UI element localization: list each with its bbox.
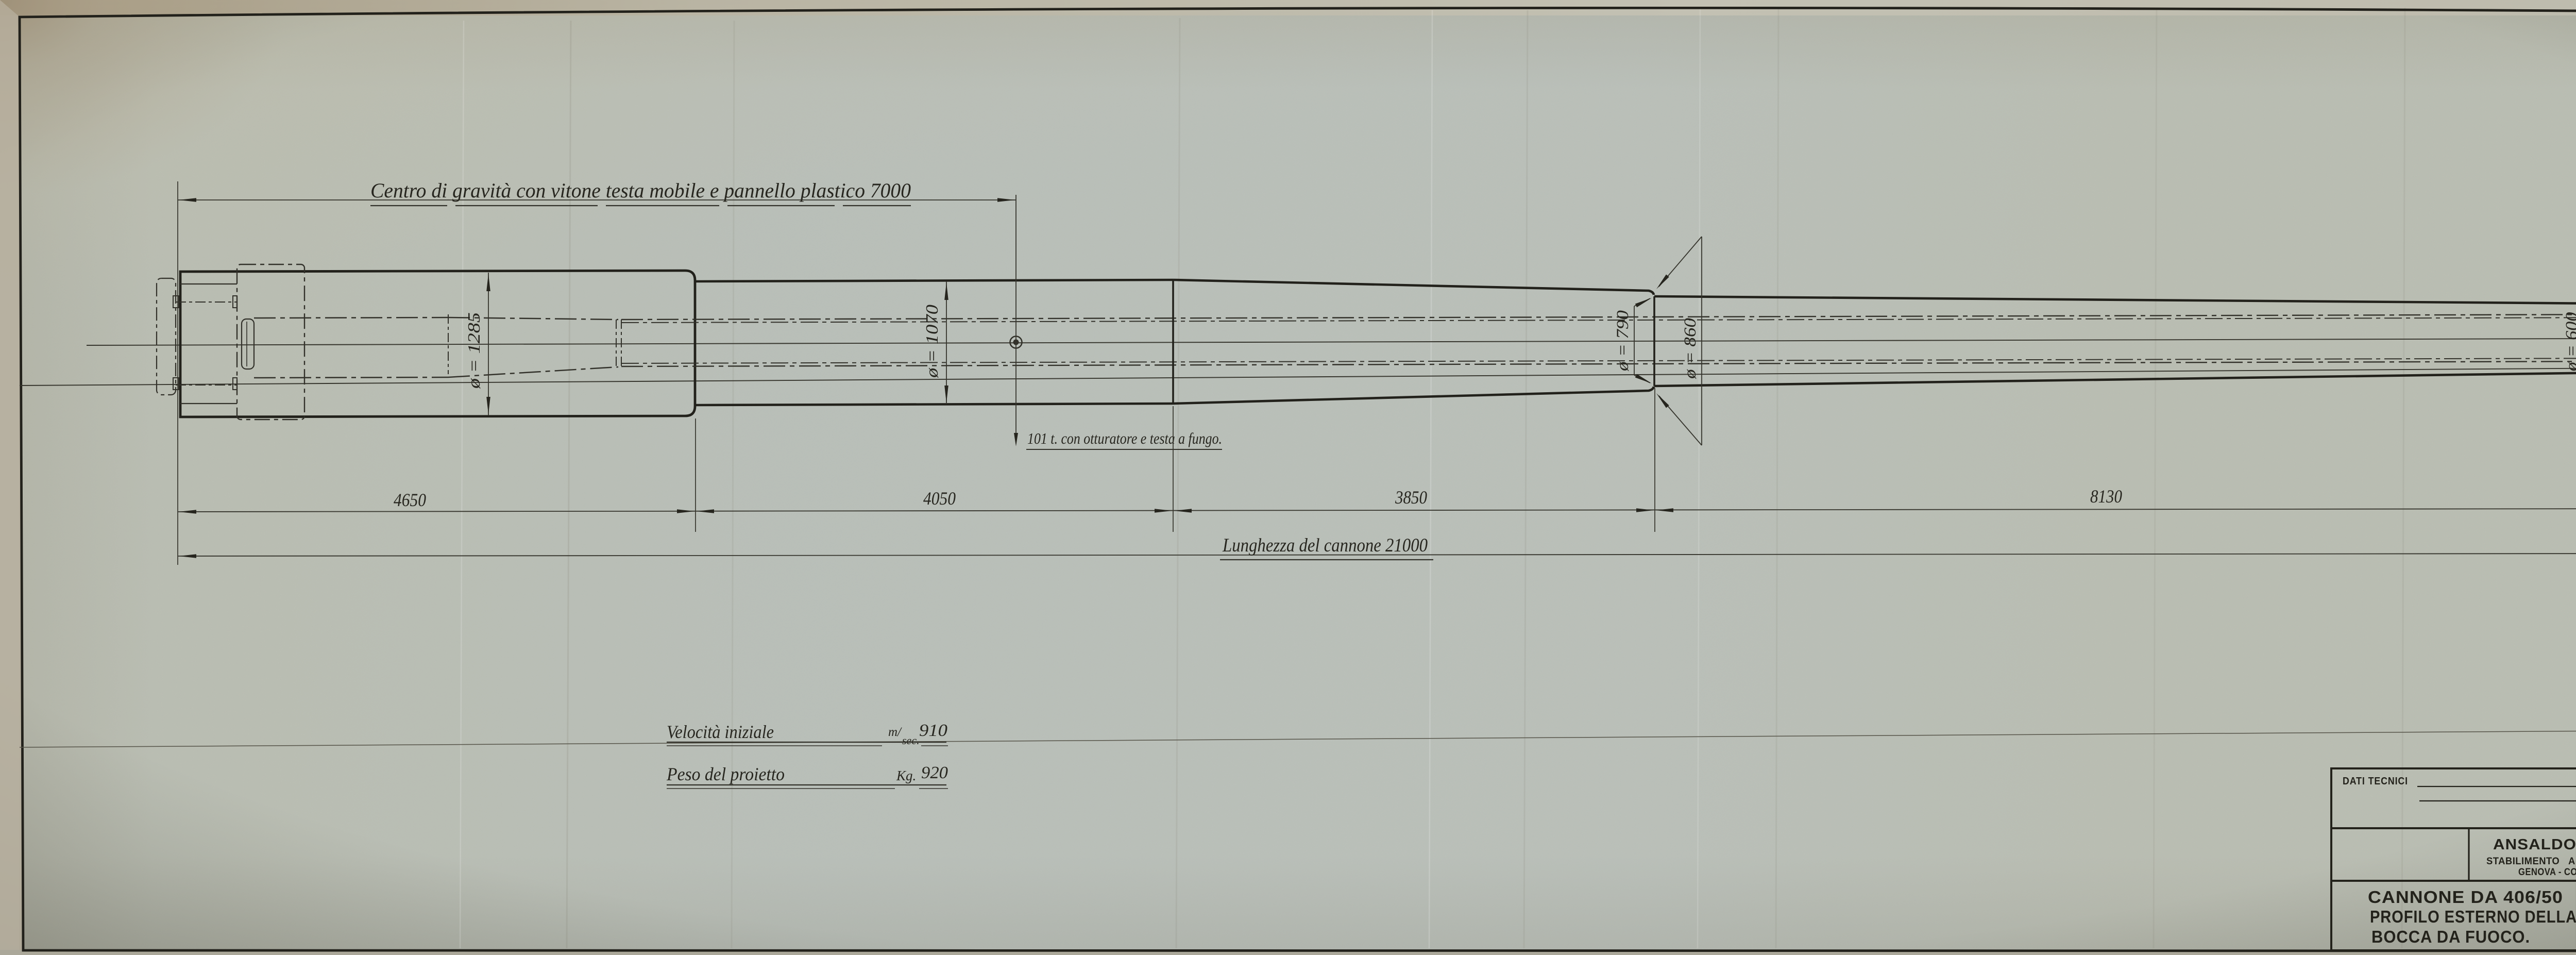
svg-text:4650: 4650 <box>394 490 426 510</box>
svg-text:STABILIMENTO ARTIGLIERIE: STABILIMENTO ARTIGLIERIE <box>2486 856 2576 867</box>
svg-text:Centro di gravità con vitone: Centro di gravità con vitone testa mobil… <box>370 179 911 202</box>
svg-text:DATI TECNICI: DATI TECNICI <box>2343 776 2408 787</box>
svg-text:Lunghezza del cannone 21000: Lunghezza del cannone 21000 <box>1222 535 1428 556</box>
svg-text:Peso del proietto: Peso del proietto <box>666 764 785 784</box>
svg-text:ø = 1285: ø = 1285 <box>465 312 484 389</box>
svg-text:ø = 1070: ø = 1070 <box>923 305 942 378</box>
svg-text:GENOVA - CORNIGLIANO: GENOVA - CORNIGLIANO <box>2518 867 2576 878</box>
svg-text:4050: 4050 <box>923 488 956 509</box>
svg-text:Kg.: Kg. <box>896 768 916 783</box>
svg-text:PROFILO ESTERNO DELLA: PROFILO ESTERNO DELLA <box>2370 907 2576 926</box>
svg-text:m/: m/ <box>888 725 902 739</box>
svg-text:920: 920 <box>921 763 948 782</box>
svg-text:ø = 790: ø = 790 <box>1614 310 1632 372</box>
svg-text:910: 910 <box>919 721 947 740</box>
svg-text:BOCCA DA FUOCO.: BOCCA DA FUOCO. <box>2371 927 2530 946</box>
svg-text:3850: 3850 <box>1395 487 1427 508</box>
svg-text:CANNONE DA 406/50: CANNONE DA 406/50 <box>2368 887 2563 907</box>
svg-text:Velocità iniziale: Velocità iniziale <box>667 722 774 742</box>
svg-text:sec.: sec. <box>902 734 920 747</box>
svg-text:8130: 8130 <box>2090 486 2122 507</box>
svg-text:ø = 860: ø = 860 <box>1681 317 1700 379</box>
svg-text:ANSALDO S. A.: ANSALDO S. A. <box>2493 836 2576 853</box>
svg-text:101 t. con otturatore e testa: 101 t. con otturatore e testa a fungo. <box>1027 429 1222 447</box>
svg-text:ø = 600: ø = 600 <box>2563 312 2576 372</box>
